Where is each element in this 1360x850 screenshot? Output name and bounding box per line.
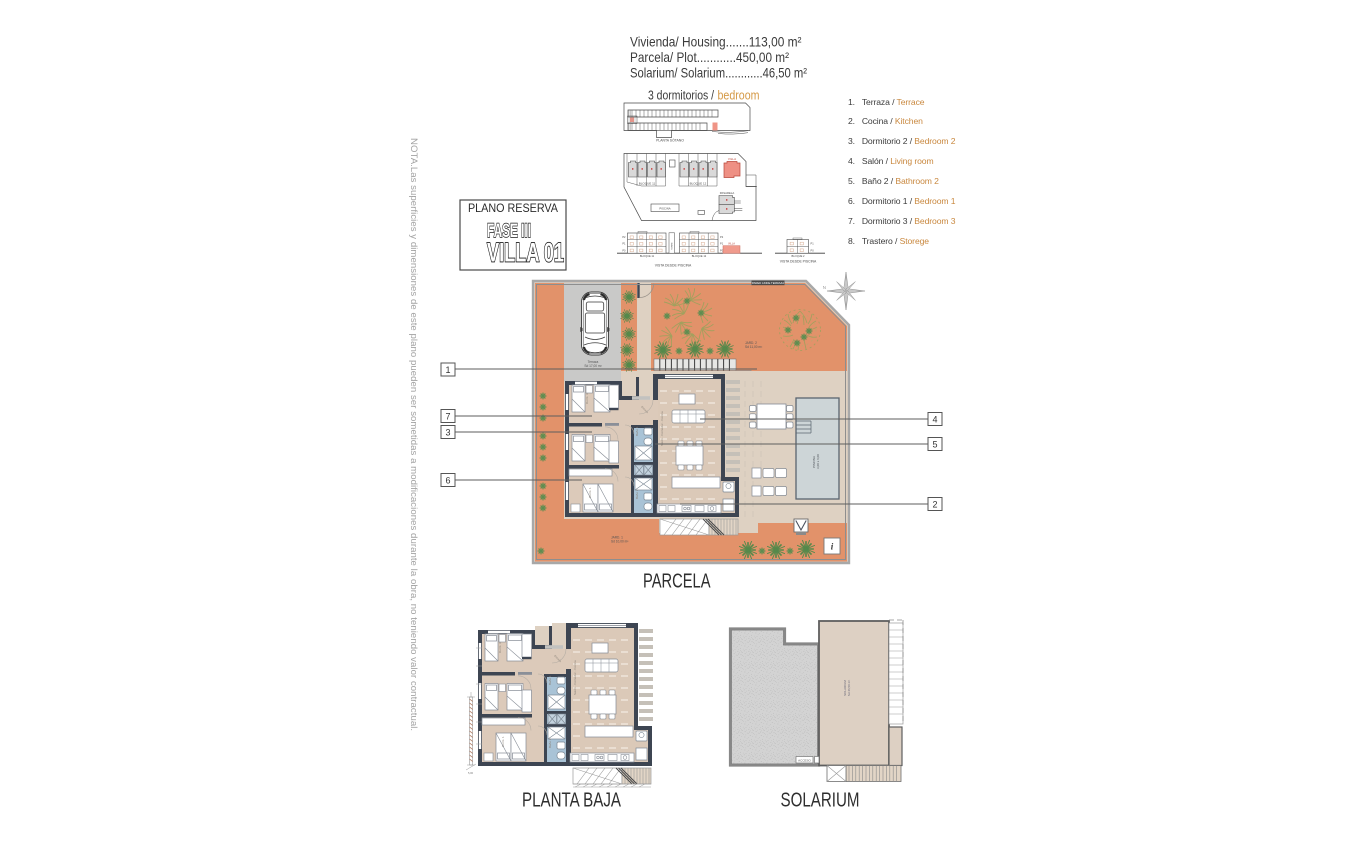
svg-text:VILLA: VILLA	[728, 157, 736, 161]
svg-text:PISCINA: PISCINA	[659, 207, 670, 211]
svg-text:VISTA DESDE PISCINA: VISTA DESDE PISCINA	[780, 260, 817, 264]
svg-text:2: 2	[932, 499, 937, 509]
svg-text:BLOQUE 12: BLOQUE 12	[690, 182, 707, 186]
svg-text:P1: P1	[720, 242, 724, 246]
svg-text:Solarium/ Solarium............: Solarium/ Solarium............46,50 m²	[630, 64, 807, 80]
svg-text:7: 7	[445, 411, 450, 421]
svg-text:BLOQUE 11: BLOQUE 11	[639, 182, 656, 186]
svg-text:5: 5	[932, 439, 937, 449]
svg-text:P1: P1	[811, 242, 815, 246]
svg-text:Parcela/ Plot............450,0: Parcela/ Plot............450,00 m²	[630, 49, 789, 65]
svg-text:BLOQUE 11: BLOQUE 11	[640, 254, 655, 258]
svg-text:TORRE: TORRE	[672, 242, 674, 250]
svg-text:VILLA 01: VILLA 01	[487, 238, 564, 268]
svg-text:PASARELA: PASARELA	[720, 191, 735, 195]
svg-text:P0: P0	[622, 249, 626, 253]
svg-text:6: 6	[445, 475, 450, 485]
svg-text:N: N	[823, 285, 826, 290]
svg-text:3,00 x 6,00: 3,00 x 6,00	[816, 454, 820, 469]
svg-text:Vivienda/ Housing.......113,00: Vivienda/ Housing.......113,00 m²	[630, 34, 802, 50]
svg-text:1: 1	[445, 365, 450, 375]
svg-text:Sd 17,00 m²: Sd 17,00 m²	[584, 364, 601, 368]
svg-text:4: 4	[932, 414, 937, 424]
svg-text:PARCELA: PARCELA	[643, 571, 711, 593]
svg-text:BLOQUE 12: BLOQUE 12	[692, 254, 707, 258]
svg-text:VILLA: VILLA	[728, 242, 735, 246]
svg-text:P1: P1	[622, 242, 626, 246]
svg-text:3 dormitorios /: 3 dormitorios /	[648, 89, 714, 103]
svg-text:Sd 10,00 m²: Sd 10,00 m²	[611, 540, 628, 544]
svg-text:Sd 11,00 m²: Sd 11,00 m²	[745, 345, 762, 349]
svg-text:PARED LINDE TERRAZA: PARED LINDE TERRAZA	[752, 281, 784, 285]
svg-text:SOLARIUM: SOLARIUM	[781, 788, 860, 811]
svg-text:3: 3	[445, 427, 450, 437]
svg-text:bedroom: bedroom	[718, 89, 760, 103]
svg-text:BLOQUE 2: BLOQUE 2	[792, 254, 806, 258]
svg-text:P2: P2	[720, 235, 724, 239]
svg-text:VISTA DESDE PISCINA: VISTA DESDE PISCINA	[655, 264, 692, 268]
svg-text:PLANTA BAJA: PLANTA BAJA	[522, 788, 621, 811]
svg-text:P2: P2	[622, 235, 626, 239]
svg-text:PLANTA SÓTANO: PLANTA SÓTANO	[656, 138, 684, 143]
svg-text:PLANO RESERVA: PLANO RESERVA	[468, 203, 558, 215]
svg-text:P0: P0	[811, 249, 815, 253]
